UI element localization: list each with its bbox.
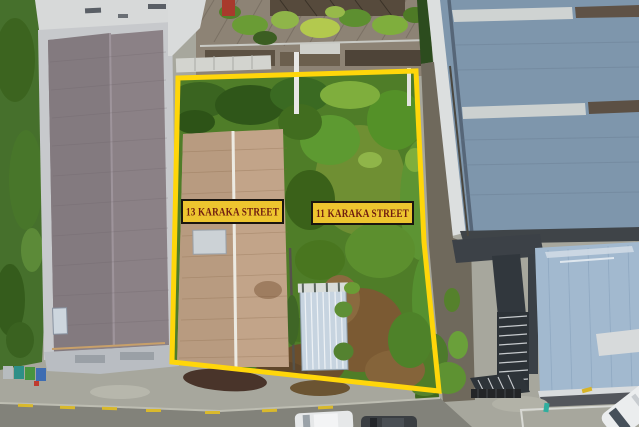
label-lot11-text: 11 KARAKA STREET	[316, 208, 409, 220]
industrial-building-right	[417, 0, 639, 244]
parked-car-dark	[361, 416, 417, 427]
office-roof	[535, 242, 639, 394]
lot13-house-roof	[177, 129, 289, 367]
glasshouse-shed	[298, 282, 354, 370]
white-pole	[294, 52, 299, 114]
red-roof-object	[222, 0, 235, 16]
planter-box	[280, 52, 340, 66]
rooftop-deck	[168, 0, 432, 76]
label-lot11: 11 KARAKA STREET	[312, 202, 413, 224]
house-skylight	[193, 230, 226, 255]
warehouse-skylight	[53, 308, 68, 334]
aerial-photo: 13 KARAKA STREET 11 KARAKA STREET	[0, 0, 639, 427]
aerial-scene: 13 KARAKA STREET 11 KARAKA STREET	[0, 0, 639, 427]
planter-box	[345, 50, 421, 66]
site-interior	[165, 65, 448, 400]
label-lot13-text: 13 KARAKA STREET	[186, 207, 279, 219]
label-lot13: 13 KARAKA STREET	[182, 200, 283, 223]
